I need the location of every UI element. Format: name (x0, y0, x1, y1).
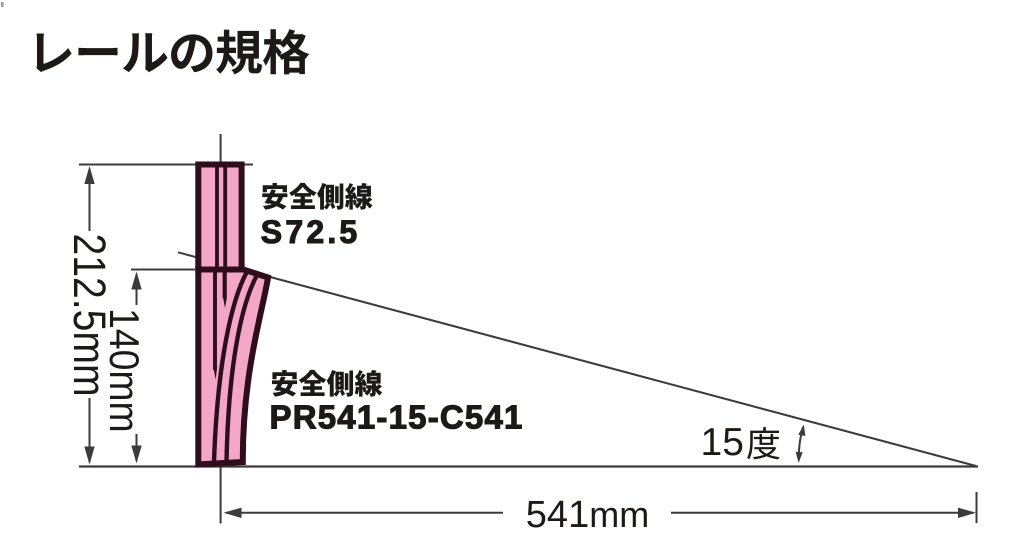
svg-text:541mm: 541mm (526, 494, 649, 536)
svg-text:15: 15 (701, 421, 744, 464)
svg-text:S72.5: S72.5 (261, 214, 361, 250)
svg-text:140mm: 140mm (100, 308, 146, 433)
svg-text:PR541-15-C541: PR541-15-C541 (270, 399, 524, 436)
